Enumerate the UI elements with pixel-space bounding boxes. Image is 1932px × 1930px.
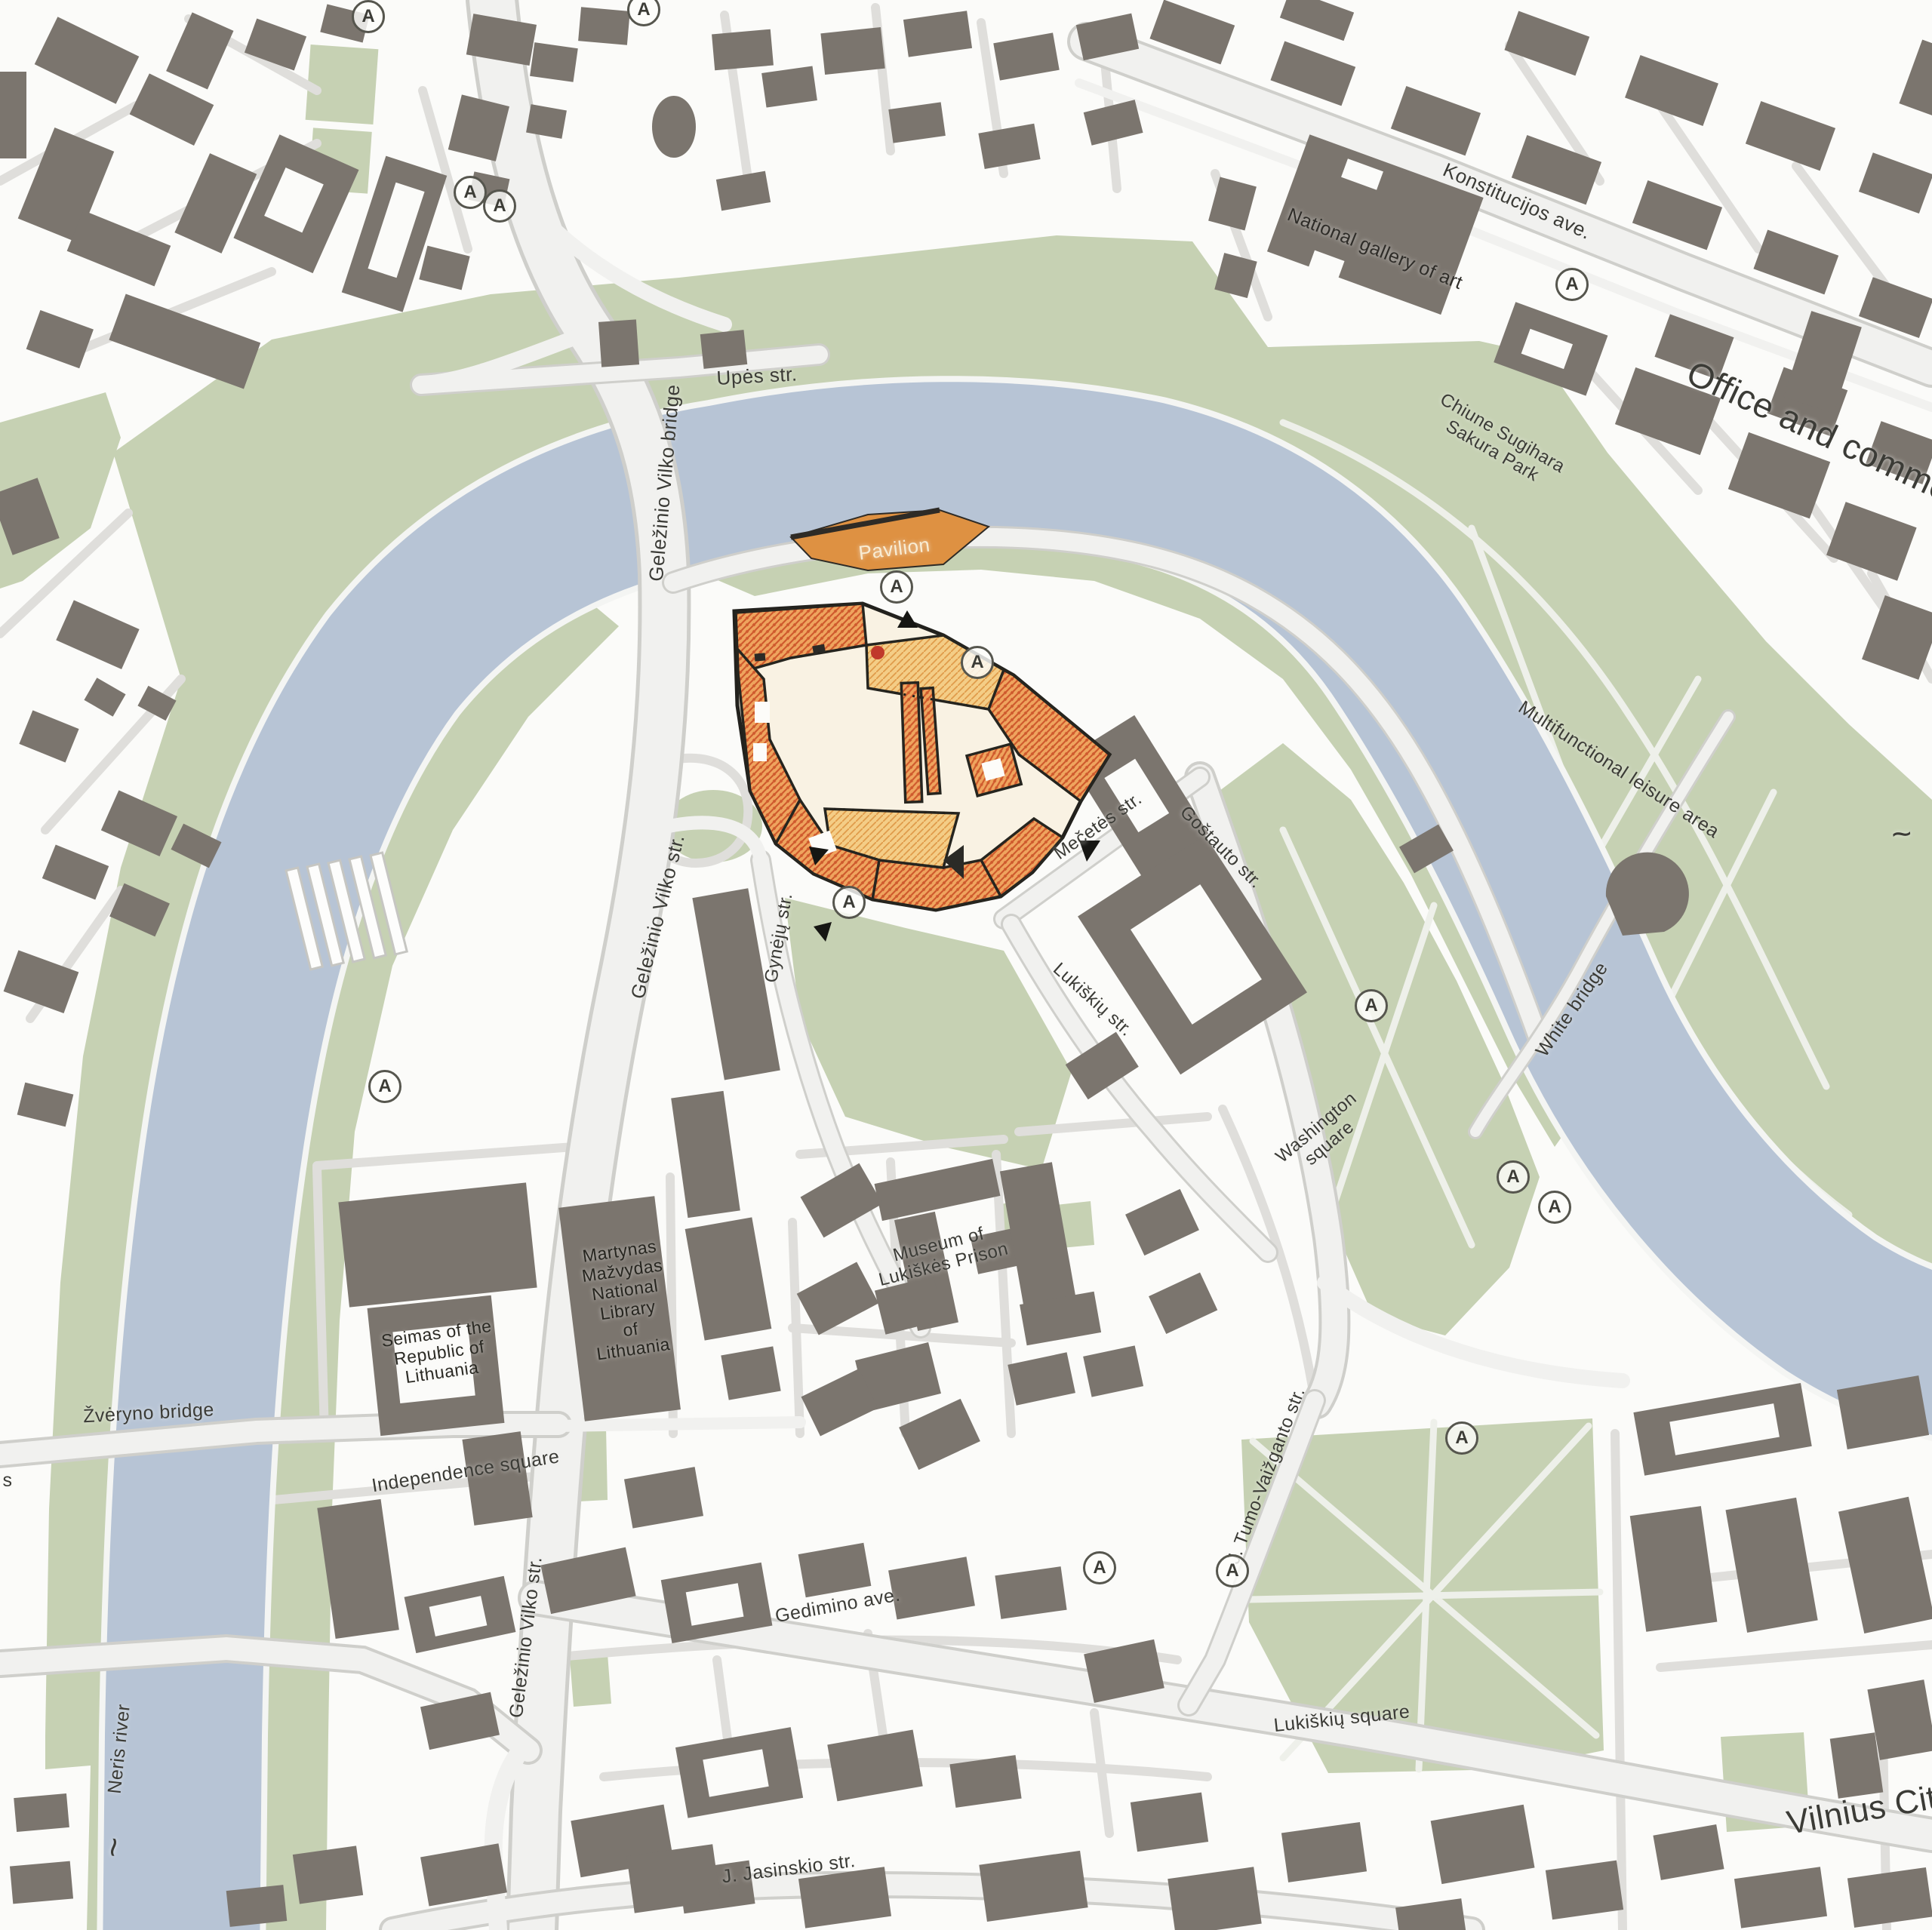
map-canvas: Konstitucijos ave.Office and commercialN…: [0, 0, 1932, 1930]
building-seimas-north: [338, 1182, 537, 1307]
amphitheater-shape: [1606, 853, 1689, 936]
map-graphics: [0, 0, 1932, 1930]
